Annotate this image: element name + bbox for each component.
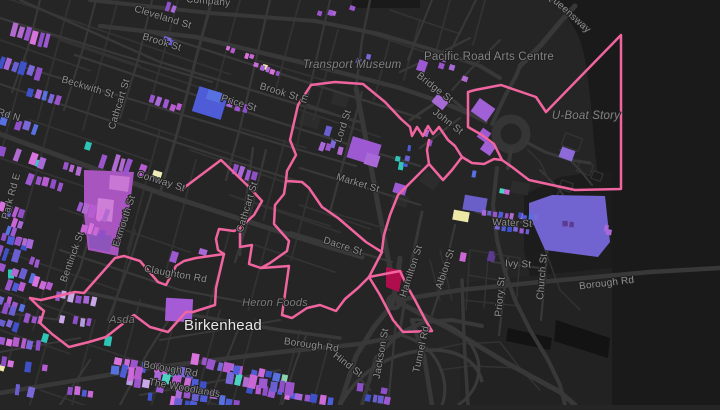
- svg-text:Water St: Water St: [492, 217, 533, 230]
- svg-text:Birkenhead: Birkenhead: [184, 317, 262, 334]
- svg-text:Pacific Road Arts Centre: Pacific Road Arts Centre: [424, 51, 554, 63]
- svg-text:Ivy St: Ivy St: [505, 258, 532, 270]
- svg-text:Transport Museum: Transport Museum: [303, 59, 402, 71]
- svg-text:Asda: Asda: [108, 314, 135, 326]
- svg-text:U-Boat Story: U-Boat Story: [552, 110, 621, 122]
- svg-text:Heron Foods: Heron Foods: [242, 297, 308, 309]
